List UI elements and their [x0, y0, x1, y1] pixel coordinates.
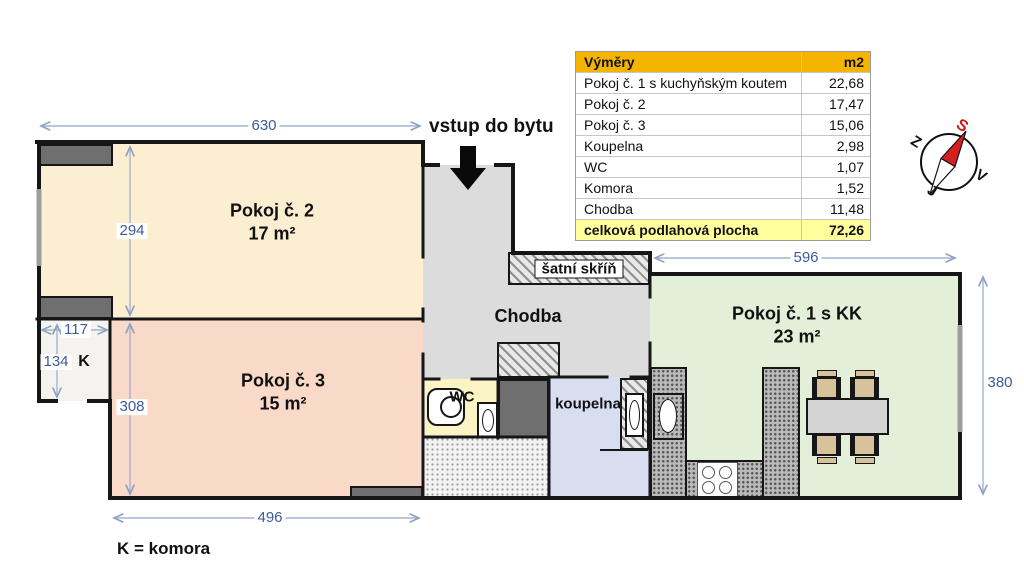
table-row: Koupelna 2,98 — [576, 135, 870, 156]
pokoj1-area: 23 m² — [732, 325, 862, 348]
wardrobe-block-top — [39, 144, 113, 166]
chair — [812, 434, 841, 456]
row-name: Koupelna — [576, 136, 802, 156]
area-table-header: Výměry m2 — [576, 52, 870, 72]
compass-letter-j: J — [924, 182, 940, 201]
table-row: Pokoj č. 2 17,47 — [576, 93, 870, 114]
legend-komora: K = komora — [117, 539, 210, 559]
wc-sink-icon — [477, 402, 498, 438]
row-value: 15,06 — [802, 115, 870, 135]
stove-icon — [697, 462, 738, 497]
wardrobe-block-bottom — [39, 296, 113, 319]
furniture-block-pokoj3 — [350, 486, 423, 498]
dim-308: 308 — [116, 399, 147, 415]
compass-letter-v: V — [972, 166, 990, 186]
room-label-chodba: Chodba — [495, 305, 562, 328]
satni-skrin-label: šatní skříň — [534, 259, 623, 278]
row-name: Pokoj č. 2 — [576, 94, 802, 114]
satni-skrin: šatní skříň — [508, 252, 650, 285]
row-value: 1,07 — [802, 157, 870, 177]
dim-294: 294 — [116, 223, 147, 239]
dim-380: 380 — [984, 375, 1015, 391]
floorplan-page: šatní skříň — [0, 0, 1024, 581]
room-chodba-upper — [423, 165, 513, 288]
pokoj2-name: Pokoj č. 2 — [230, 200, 314, 223]
pokoj1-name: Pokoj č. 1 s KK — [732, 303, 862, 326]
room-label-koupelna: koupelna — [555, 396, 621, 413]
area-table-unit: m2 — [802, 52, 870, 72]
row-value: 2,98 — [802, 136, 870, 156]
dim-134: 134 — [40, 354, 71, 370]
row-value: 22,68 — [802, 73, 870, 93]
compass-letter-s: S — [953, 116, 971, 136]
row-name: Pokoj č. 3 — [576, 115, 802, 135]
room-label-pokoj3: Pokoj č. 3 15 m² — [241, 370, 325, 415]
chair — [850, 377, 879, 399]
compass-rose-icon: S Z V J — [908, 116, 990, 200]
row-name: Pokoj č. 1 s kuchyňským koutem — [576, 73, 802, 93]
chair-back — [855, 370, 875, 377]
dim-117: 117 — [61, 322, 91, 338]
row-value: 11,48 — [802, 199, 870, 219]
table-row: Pokoj č. 3 15,06 — [576, 114, 870, 135]
room-label-pokoj2: Pokoj č. 2 17 m² — [230, 200, 314, 245]
row-name: Komora — [576, 178, 802, 198]
room-label-komora: K — [78, 353, 90, 371]
room-label-wc: WC — [450, 389, 475, 406]
dining-table — [806, 398, 889, 435]
row-name: Chodba — [576, 199, 802, 219]
dim-630: 630 — [248, 118, 279, 134]
entrance-label: vstup do bytu — [429, 116, 554, 138]
chair — [850, 434, 879, 456]
area-table: Výměry m2 Pokoj č. 1 s kuchyňským koutem… — [575, 51, 871, 241]
table-row: WC 1,07 — [576, 156, 870, 177]
dim-596: 596 — [790, 250, 821, 266]
row-name: WC — [576, 157, 802, 177]
washing-machine-icon — [620, 378, 649, 450]
total-name: celková podlahová plocha — [576, 220, 802, 240]
pokoj3-area: 15 m² — [241, 392, 325, 415]
dim-496: 496 — [254, 510, 285, 526]
pokoj3-name: Pokoj č. 3 — [241, 370, 325, 393]
chair-back — [855, 457, 875, 464]
row-value: 17,47 — [802, 94, 870, 114]
duct-block-wc — [498, 379, 549, 438]
chair-back — [817, 457, 837, 464]
pokoj2-area: 17 m² — [230, 222, 314, 245]
table-row: Komora 1,52 — [576, 177, 870, 198]
kitchen-counter-right — [762, 367, 800, 498]
table-row: Pokoj č. 1 s kuchyňským koutem 22,68 — [576, 72, 870, 93]
total-value: 72,26 — [802, 220, 870, 240]
chair — [812, 377, 841, 399]
compass-letter-z: Z — [908, 132, 925, 151]
kitchen-sink-icon — [653, 393, 684, 440]
area-table-title: Výměry — [576, 52, 802, 72]
room-label-pokoj1: Pokoj č. 1 s KK 23 m² — [732, 303, 862, 348]
row-value: 1,52 — [802, 178, 870, 198]
hall-wardrobe — [497, 342, 560, 378]
table-row: Chodba 11,48 — [576, 198, 870, 219]
area-table-total-row: celková podlahová plocha 72,26 — [576, 219, 870, 240]
floor-area-below-wc — [425, 437, 549, 498]
chair-back — [817, 370, 837, 377]
